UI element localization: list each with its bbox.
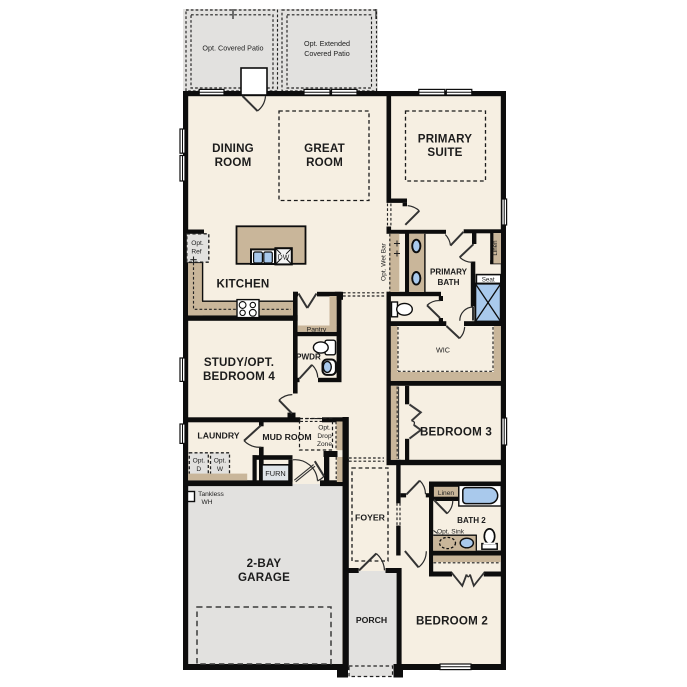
svg-text:GARAGE: GARAGE (238, 571, 290, 584)
svg-text:Linen: Linen (438, 490, 454, 497)
svg-text:BEDROOM 3: BEDROOM 3 (420, 426, 492, 439)
svg-text:FURN: FURN (265, 469, 286, 478)
svg-text:BEDROOM 4: BEDROOM 4 (203, 370, 275, 383)
svg-text:D: D (196, 466, 201, 473)
svg-text:Seat: Seat (482, 277, 495, 284)
svg-text:WH: WH (202, 499, 213, 506)
svg-text:Ref: Ref (191, 249, 201, 256)
svg-text:DINING: DINING (212, 142, 254, 155)
svg-text:Zone: Zone (317, 441, 332, 448)
svg-text:LAUNDRY: LAUNDRY (197, 431, 239, 441)
svg-text:2-BAY: 2-BAY (247, 557, 282, 570)
svg-text:ROOM: ROOM (306, 156, 343, 169)
svg-text:STUDY/OPT.: STUDY/OPT. (204, 356, 274, 369)
svg-text:BEDROOM 2: BEDROOM 2 (416, 615, 488, 628)
svg-text:PWDR: PWDR (296, 353, 321, 362)
svg-text:Drop: Drop (317, 433, 332, 440)
svg-text:Opt.: Opt. (193, 457, 206, 464)
svg-text:SUITE: SUITE (427, 146, 462, 159)
svg-text:Opt.: Opt. (214, 457, 227, 464)
svg-text:Opt. Wet Bar: Opt. Wet Bar (381, 242, 388, 281)
svg-text:KITCHEN: KITCHEN (217, 278, 270, 291)
svg-text:W: W (217, 466, 224, 473)
svg-text:Covered Patio: Covered Patio (304, 49, 350, 58)
svg-text:Opt. Extended: Opt. Extended (304, 39, 350, 48)
svg-text:Opt. Sink: Opt. Sink (437, 529, 465, 536)
svg-text:BATH 2: BATH 2 (457, 516, 486, 525)
svg-text:PRIMARY: PRIMARY (430, 268, 468, 277)
svg-text:MUD ROOM: MUD ROOM (262, 432, 311, 442)
svg-text:Tankless: Tankless (198, 491, 224, 498)
svg-text:WIC: WIC (436, 346, 450, 355)
svg-text:DW: DW (278, 254, 290, 261)
svg-text:PRIMARY: PRIMARY (418, 133, 472, 146)
svg-text:FOYER: FOYER (355, 513, 386, 523)
svg-text:PORCH: PORCH (356, 615, 387, 625)
svg-text:Linen: Linen (492, 240, 499, 256)
svg-text:Opt. Covered Patio: Opt. Covered Patio (202, 44, 263, 53)
svg-text:ROOM: ROOM (215, 156, 252, 169)
svg-text:Opt.: Opt. (191, 240, 204, 247)
svg-text:BATH: BATH (438, 278, 460, 287)
svg-text:GREAT: GREAT (304, 142, 345, 155)
svg-text:Opt.: Opt. (318, 425, 331, 432)
svg-text:Pantry: Pantry (307, 327, 327, 334)
